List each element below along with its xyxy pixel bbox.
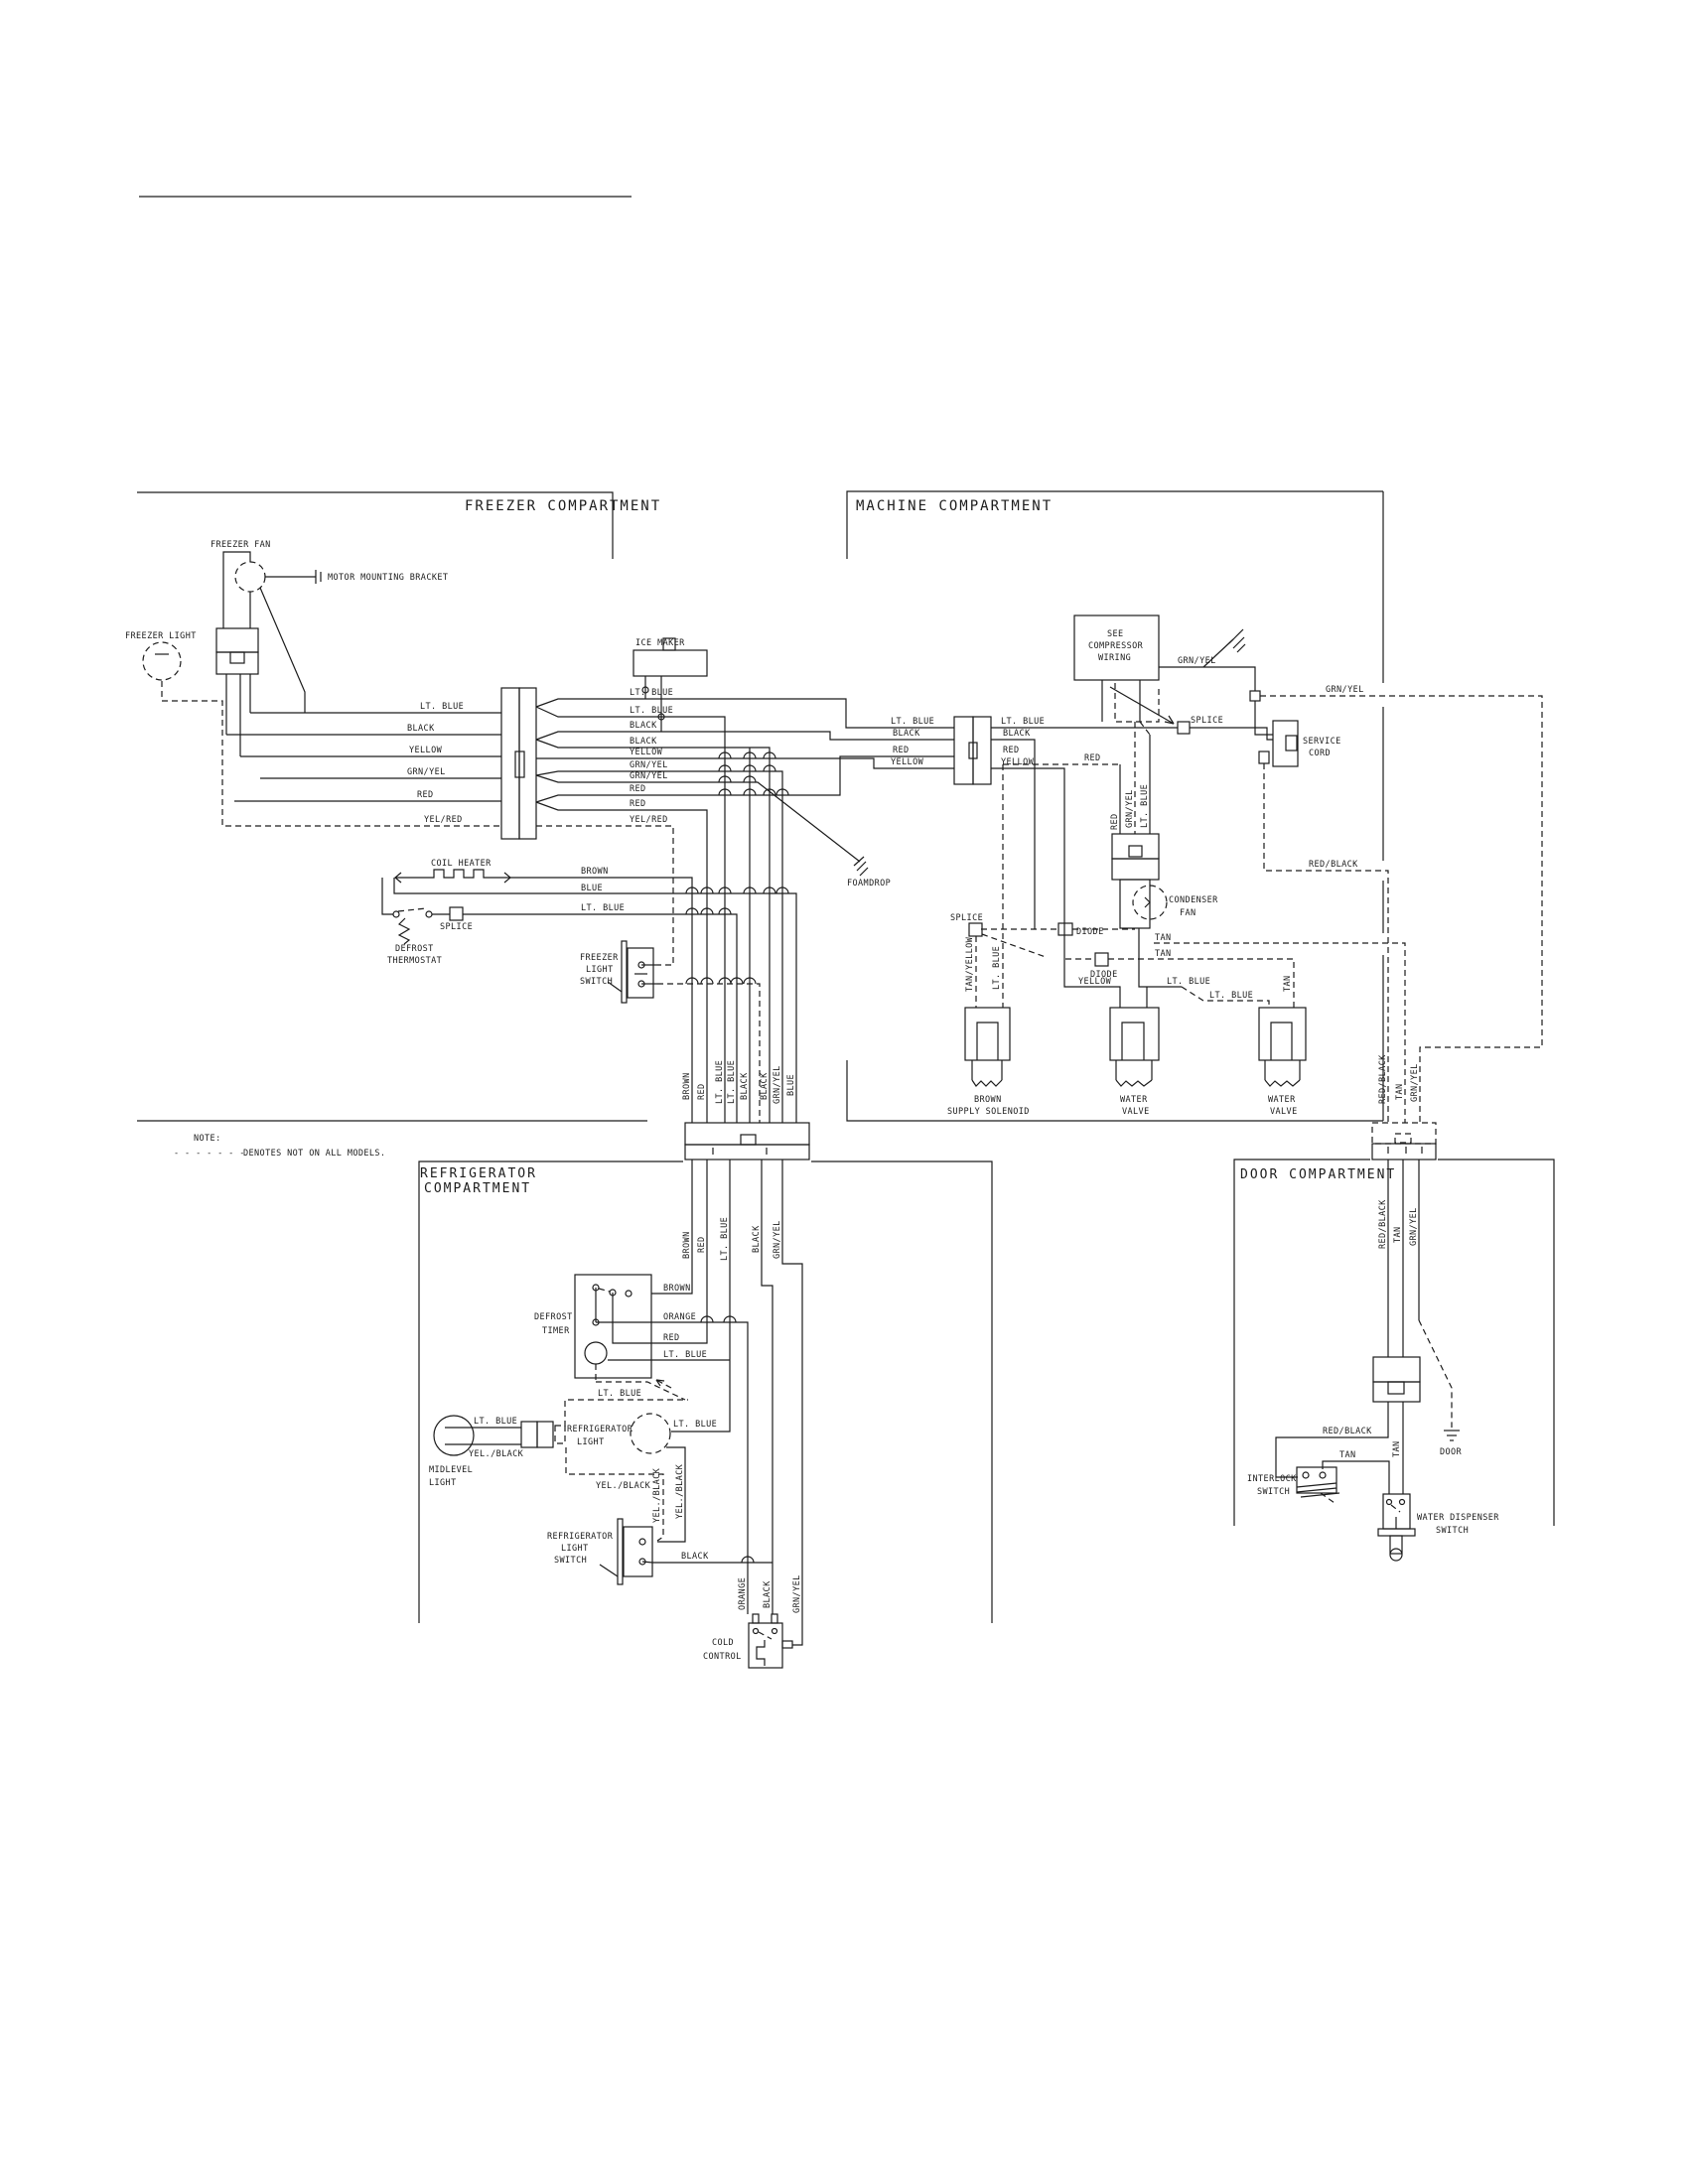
wire — [1190, 728, 1273, 740]
wire — [757, 1640, 765, 1666]
supply-solenoid-body — [965, 1008, 1010, 1060]
wire-color-label: BLACK — [893, 729, 920, 739]
wire-color-label: LT. BLUE — [598, 1389, 641, 1399]
wire-color-label: YEL./BLACK — [675, 1463, 685, 1519]
refrigerator-compartment-border — [419, 1161, 683, 1623]
wire — [657, 984, 760, 1123]
component-box — [1395, 1134, 1411, 1143]
wire-color-label: LT. BLUE — [1140, 784, 1150, 828]
component-circle — [1303, 1472, 1309, 1478]
freezer-harness-connector — [501, 688, 519, 839]
wire-color-label: LT. BLUE — [891, 717, 934, 727]
wire — [382, 878, 393, 914]
wire-color-label: GRN/YEL — [1409, 1207, 1419, 1246]
compressor-wiring-label: SEE — [1107, 629, 1124, 639]
defrost-timer-label: TIMER — [542, 1326, 570, 1336]
splice-label: SPLICE — [950, 913, 983, 923]
wire — [1271, 1023, 1292, 1060]
wire-color-label: YEL/RED — [424, 815, 463, 825]
wire-color-label: BLACK — [681, 1552, 709, 1562]
machine-harness-connector — [954, 717, 973, 784]
wire-color-label: LT. BLUE — [630, 706, 673, 716]
wire-color-label: LT. BLUE — [715, 1060, 725, 1104]
component-circle — [1387, 1500, 1392, 1505]
condenser-fan-connector — [1112, 859, 1159, 880]
refrigerator-light-bulb — [631, 1414, 670, 1453]
cold-control-label: COLD — [712, 1638, 734, 1648]
wiring-svg: FREEZER COMPARTMENTMACHINE COMPARTMENTRE… — [0, 0, 1688, 2184]
freezer-light-switch-label: SWITCH — [580, 977, 613, 987]
refrigerator-compartment-header: COMPARTMENT — [424, 1181, 531, 1196]
machine-compartment-border — [847, 1060, 1383, 1121]
wire-color-label: GRN/YEL — [1125, 789, 1135, 828]
wire — [977, 1023, 998, 1060]
wire-color-label: BLACK — [630, 721, 657, 731]
component-box — [1259, 751, 1269, 763]
component-circle — [754, 1629, 759, 1634]
defrost-timer-label: DEFROST — [534, 1312, 573, 1322]
service-cord-label: SERVICE — [1303, 737, 1341, 747]
wire — [1391, 1505, 1400, 1512]
wire-color-label: BROWN — [581, 867, 609, 877]
component-circle — [393, 911, 399, 917]
wire-color-label: TAN — [1395, 1083, 1405, 1100]
refrigerator-harness-connector — [685, 1145, 809, 1160]
note-dashes: - - - - - - - — [174, 1149, 245, 1159]
door-connector — [1373, 1357, 1420, 1382]
wire — [536, 826, 673, 965]
wire-color-label: BLACK — [407, 724, 435, 734]
wire — [651, 1160, 692, 1294]
component-circle — [426, 911, 432, 917]
wire-color-label: TAN — [1155, 949, 1172, 959]
motor-mounting-bracket-label: MOTOR MOUNTING BRACKET — [328, 573, 448, 583]
wire-color-label: BLACK — [630, 737, 657, 747]
wire — [223, 552, 250, 628]
wire — [762, 1160, 773, 1614]
wire-color-label: GRN/YEL — [407, 767, 446, 777]
wire — [1276, 1402, 1388, 1477]
wire-color-label: YEL./BLACK — [596, 1481, 651, 1491]
component-box — [772, 1614, 777, 1623]
wire-color-label: RED — [630, 799, 646, 809]
machine-harness-connector — [973, 717, 991, 784]
midlevel-light-label: MIDLEVEL — [429, 1465, 473, 1475]
refrigerator-light-switch-body — [618, 1519, 623, 1584]
note-heading: NOTE: — [194, 1134, 221, 1144]
splice-label: SPLICE — [440, 922, 473, 932]
wire — [972, 1080, 1002, 1086]
wire-color-label: LT. BLUE — [727, 1060, 737, 1104]
wire-color-label: BLACK — [740, 1072, 750, 1100]
compressor-wiring-label: COMPRESSOR — [1088, 641, 1144, 651]
diode-box — [1095, 953, 1108, 966]
wire-color-label: BROWN — [682, 1072, 692, 1100]
wire-color-label: RED — [663, 1333, 680, 1343]
wire — [613, 1293, 651, 1343]
wire — [565, 1400, 688, 1427]
wire-color-label: YEL/RED — [630, 815, 668, 825]
wire — [395, 870, 692, 1123]
compressor-wiring-label: WIRING — [1098, 653, 1131, 663]
wire — [1145, 897, 1150, 907]
wire — [1116, 1080, 1152, 1086]
wire — [536, 775, 860, 862]
wire-color-label: BLUE — [581, 884, 603, 893]
splice-box — [969, 923, 982, 936]
freezer-harness-connector — [519, 688, 536, 839]
door-compartment-border — [1438, 1160, 1554, 1526]
midlevel-light-bulb — [434, 1416, 474, 1455]
wire-color-label: BLACK — [752, 1225, 762, 1253]
midlevel-light-connector — [521, 1422, 537, 1447]
wire-color-label: ORANGE — [738, 1577, 748, 1610]
door-harness-connector — [1372, 1144, 1436, 1160]
wire — [260, 588, 305, 713]
wire-color-label: LT. BLUE — [1167, 977, 1210, 987]
ice-maker-body — [633, 650, 707, 676]
wire-color-label: BLACK — [763, 1580, 773, 1608]
door-compartment-header: DOOR COMPARTMENT — [1240, 1167, 1396, 1182]
refrigerator-light-switch-label: LIGHT — [561, 1544, 589, 1554]
refrigerator-light-switch-label: REFRIGERATOR — [547, 1532, 614, 1542]
wire — [1122, 1023, 1144, 1060]
refrigerator-compartment-header: REFRIGERATOR — [420, 1166, 537, 1181]
wire-color-label: GRN/YEL — [1326, 685, 1364, 695]
wire-color-label: LT. BLUE — [630, 688, 673, 698]
splice-label: SPLICE — [1191, 716, 1223, 726]
wire-color-label: LT. BLUE — [673, 1420, 717, 1430]
wire — [536, 732, 954, 740]
interlock-switch-label: SWITCH — [1257, 1487, 1290, 1497]
component-circle — [1390, 1549, 1402, 1561]
wire-color-label: BROWN — [663, 1284, 691, 1294]
freezer-light-switch-body — [622, 941, 627, 1003]
condenser-fan-label: CONDENSER — [1169, 895, 1218, 905]
ice-maker-label: ICE MAKER — [635, 638, 685, 648]
wire-color-label: LT. BLUE — [420, 702, 464, 712]
defrost-thermostat-label: DEFROST — [395, 944, 434, 954]
door-harness-connector — [1372, 1123, 1436, 1144]
wire-color-label: ORANGE — [663, 1312, 696, 1322]
refrigerator-light-label: LIGHT — [577, 1437, 605, 1447]
wire-color-label: GRN/YEL — [1410, 1063, 1420, 1102]
wire-color-label: BLACK — [760, 1072, 770, 1100]
wire — [860, 868, 868, 876]
wire — [651, 1322, 748, 1614]
component-box — [1129, 846, 1142, 857]
splice-box — [450, 907, 463, 920]
component-box — [555, 1426, 565, 1443]
wire — [1323, 1461, 1389, 1494]
wire-color-label: YELLOW — [891, 757, 924, 767]
wire-color-label: RED — [697, 1083, 707, 1100]
water-valve-label: WATER — [1268, 1095, 1296, 1105]
wire-color-label: RED — [893, 746, 910, 755]
component-box — [782, 1641, 792, 1648]
wire-color-label: TAN — [1392, 1440, 1402, 1457]
wire-color-label: YELLOW — [409, 746, 443, 755]
wire-color-label: TAN — [1155, 933, 1172, 943]
wire-color-label: YELLOW — [630, 748, 663, 757]
wire-color-label: GRN/YEL — [773, 1220, 782, 1259]
wire-color-label: TAN — [1393, 1226, 1403, 1243]
water-dispenser-switch-label: WATER DISPENSER — [1417, 1513, 1499, 1523]
wire-color-label: LT. BLUE — [663, 1350, 707, 1360]
wire-color-label: TAN/YELLOW — [965, 936, 975, 992]
wire — [1255, 701, 1273, 735]
refrigerator-compartment-border — [811, 1161, 992, 1623]
freezer-fan-label: FREEZER FAN — [211, 540, 271, 550]
component-circle — [1400, 1500, 1405, 1505]
wire-color-label: LT. BLUE — [1209, 991, 1253, 1001]
component-circle — [626, 1291, 632, 1297]
component-circle — [773, 1629, 777, 1634]
component-box — [753, 1614, 759, 1623]
wire-color-label: GRN/YEL — [630, 760, 668, 770]
midlevel-light-connector — [537, 1422, 553, 1447]
component-box — [1388, 1382, 1404, 1394]
wire — [759, 1632, 772, 1639]
defrost-timer-motor — [585, 1342, 607, 1364]
wire-color-label: RED/BLACK — [1323, 1427, 1372, 1436]
water-valve-label: VALVE — [1270, 1107, 1298, 1117]
wire — [1159, 667, 1255, 691]
door-compartment-border — [1234, 1160, 1370, 1526]
defrost-thermostat-label: THERMOSTAT — [387, 956, 442, 966]
freezer-compartment-header: FREEZER COMPARTMENT — [465, 498, 661, 514]
wire-color-label: RED/BLACK — [1378, 1199, 1388, 1249]
wire-color-label: RED — [1084, 753, 1101, 763]
wire — [857, 862, 866, 871]
page: FREEZER COMPARTMENTMACHINE COMPARTMENTRE… — [0, 0, 1688, 2184]
diode-label: DIODE — [1076, 927, 1104, 937]
splice-box — [1178, 722, 1190, 734]
wire-color-label: BLACK — [1003, 729, 1031, 739]
wire-color-label: RED — [630, 784, 646, 794]
wire-color-label: YELLOW — [1001, 757, 1035, 767]
condenser-fan-label: FAN — [1180, 908, 1196, 918]
freezer-light-switch-body — [628, 948, 653, 998]
component-box — [1378, 1529, 1415, 1536]
water-dispenser-switch-label: SWITCH — [1436, 1526, 1469, 1536]
wire — [1260, 696, 1542, 1123]
water-valve-label: WATER — [1120, 1095, 1148, 1105]
wire-color-label: GRN/YEL — [792, 1574, 802, 1613]
refrigerator-harness-connector — [685, 1123, 809, 1145]
wire — [671, 1160, 730, 1432]
freezer-light-bulb — [143, 642, 181, 680]
wire-color-label: RED — [1110, 813, 1120, 830]
supply-solenoid-label: SUPPLY SOLENOID — [947, 1107, 1030, 1117]
door-connector — [1373, 1382, 1420, 1402]
wire — [600, 1565, 618, 1576]
freezer-light-label: FREEZER LIGHT — [125, 631, 197, 641]
freezer-light-switch-label: LIGHT — [586, 965, 614, 975]
wire — [782, 1160, 802, 1645]
wire-color-label: LT. BLUE — [1001, 717, 1045, 727]
coil-heater-label: COIL HEATER — [431, 859, 492, 869]
wire — [1265, 1080, 1300, 1086]
wire — [463, 914, 737, 1123]
refrigerator-light-switch-label: SWITCH — [554, 1556, 587, 1566]
service-cord-label: CORD — [1309, 749, 1331, 758]
wire — [1237, 644, 1245, 652]
wire-color-label: RED — [697, 1236, 707, 1253]
door-label: DOOR — [1440, 1447, 1463, 1457]
wire-color-label: GRN/YEL — [1178, 656, 1216, 666]
wire — [1297, 1488, 1336, 1492]
diode-box — [1058, 923, 1072, 935]
wire-color-label: BLUE — [786, 1074, 796, 1096]
component-box — [741, 1135, 756, 1145]
foamdrop-label: FOAMDROP — [847, 879, 891, 888]
wire-color-label: TAN — [1283, 975, 1293, 992]
wire-color-label: YEL./BLACK — [652, 1467, 662, 1523]
wire — [399, 918, 409, 944]
component-circle — [1320, 1472, 1326, 1478]
wire-color-label: RED/BLACK — [1309, 860, 1358, 870]
wire-color-label: GRN/YEL — [630, 771, 668, 781]
wire-color-label: LT. BLUE — [720, 1217, 730, 1261]
wire-color-label: LT. BLUE — [474, 1417, 517, 1427]
wire-color-label: GRN/YEL — [773, 1065, 782, 1104]
wire-color-label: LT. BLUE — [581, 903, 625, 913]
condenser-fan-body — [1120, 880, 1150, 928]
freezer-light-switch-label: FREEZER — [580, 953, 619, 963]
wire — [1419, 1320, 1452, 1428]
refrigerator-light-switch-body — [624, 1527, 652, 1576]
wire — [1297, 1483, 1336, 1487]
water-valve-label: VALVE — [1122, 1107, 1150, 1117]
note-text: DENOTES NOT ON ALL MODELS. — [243, 1149, 385, 1159]
refrigerator-light-label: REFRIGERATOR — [567, 1425, 633, 1434]
wire-color-label: RED — [417, 790, 434, 800]
water-valve-body — [1259, 1008, 1306, 1060]
midlevel-light-label: LIGHT — [429, 1478, 457, 1488]
wire-color-label: BROWN — [682, 1231, 692, 1259]
wire — [599, 1289, 610, 1292]
component-box — [1250, 691, 1260, 701]
component-box — [230, 652, 244, 663]
interlock-switch-label: INTERLOCK — [1247, 1474, 1297, 1484]
freezer-fan-connector — [216, 628, 258, 652]
water-valve-body — [1110, 1008, 1159, 1060]
cold-control-label: CONTROL — [703, 1652, 742, 1662]
wire-color-label: TAN — [1339, 1450, 1356, 1460]
supply-solenoid-label: BROWN — [974, 1095, 1002, 1105]
component-circle — [639, 1539, 645, 1545]
machine-compartment-header: MACHINE COMPARTMENT — [856, 498, 1053, 514]
wire-color-label: YEL./BLACK — [469, 1449, 524, 1459]
component-box — [1286, 736, 1297, 751]
wire-color-label: YELLOW — [1078, 977, 1112, 987]
wire-color-label: RED — [1003, 746, 1020, 755]
wire — [398, 908, 426, 911]
wire-color-label: LT. BLUE — [992, 946, 1002, 990]
wire-color-label: RED/BLACK — [1378, 1054, 1388, 1104]
freezer-fan-motor — [235, 562, 265, 592]
wire — [1110, 687, 1174, 724]
